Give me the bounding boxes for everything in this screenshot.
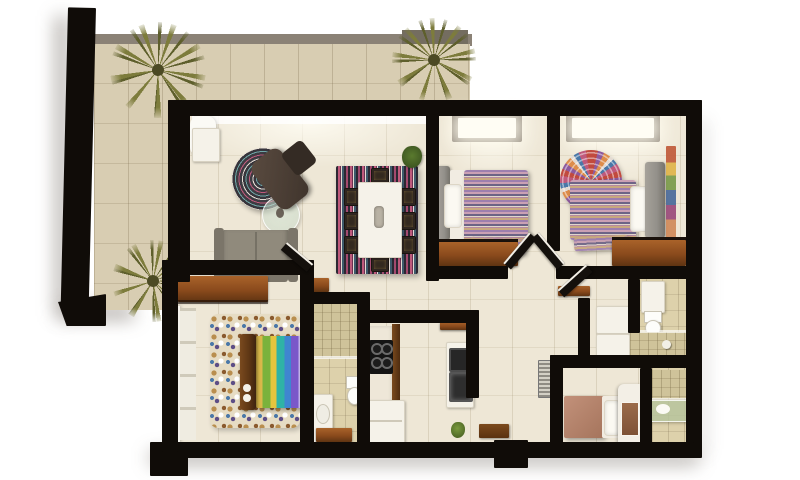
wall-art [666,146,676,238]
striped-blanket [464,170,528,242]
palm-trunk [145,273,162,290]
shower-area [630,332,686,356]
sink-basin [656,404,670,414]
bed-pillow [444,184,462,228]
wall-utility-left [578,298,590,358]
table-centerpiece [374,206,384,228]
sink-basin [316,404,330,424]
dining-chair [344,212,359,230]
wall-living-bedroom1 [426,100,439,281]
palm-trunk [151,63,165,77]
palm-trunk [427,53,442,68]
burner-icon [381,343,393,355]
single-bed-blanket [564,396,604,438]
wardrobe [178,276,268,302]
terrace-outer-wall [61,7,96,306]
wall-bedrooms-hall-left [426,266,508,279]
shower-glass [314,356,357,359]
dining-chair [401,188,416,206]
wall-kitchen-right [466,310,479,398]
sink-cabinet [641,281,665,313]
shower-area [313,304,358,358]
wall-master-right [300,260,314,452]
window-sill [180,308,196,440]
doormat [479,424,509,438]
wall-kitchen-top [357,310,479,323]
dining-chair [371,168,389,183]
outer-wall-top [168,100,702,116]
dining-chair [344,188,359,206]
rainbow-striped-bed [256,336,306,408]
side-cabinet [192,128,220,162]
outer-wall-left-lower [162,260,178,452]
burner-icon [381,357,393,369]
dining-chair [401,212,416,230]
floor-plan-render [0,0,800,480]
dining-chair [401,236,416,254]
dining-chair [344,236,359,254]
skylight-pane [572,118,654,138]
outer-wall-left-upper [168,100,190,282]
shower-drain [662,340,671,349]
fridge-door-line [368,420,402,422]
closet-door-panel [621,402,639,436]
wall-bedroom1-bedroom2 [547,100,560,251]
outer-wall-right [686,100,702,458]
bathroom-door [316,428,352,442]
outer-wall-bottom [162,442,694,458]
wall-bath2-left [628,279,640,333]
dining-chair [371,257,389,272]
headboard-knob [243,394,251,402]
wall-service-top [550,355,695,368]
hall-shelf [313,278,329,292]
wall-bath3-left [640,368,652,452]
outer-wall-step-entry [494,440,528,468]
skylight-pane [458,118,516,138]
wardrobe [612,240,686,266]
washer [596,306,630,334]
fridge [367,400,405,444]
wardrobe-shadow [178,300,268,304]
striped-blanket [570,180,636,240]
headboard-knob [243,384,251,392]
shower-area [652,370,686,398]
bed-headboard [645,162,665,238]
wall-service-left [550,355,563,452]
